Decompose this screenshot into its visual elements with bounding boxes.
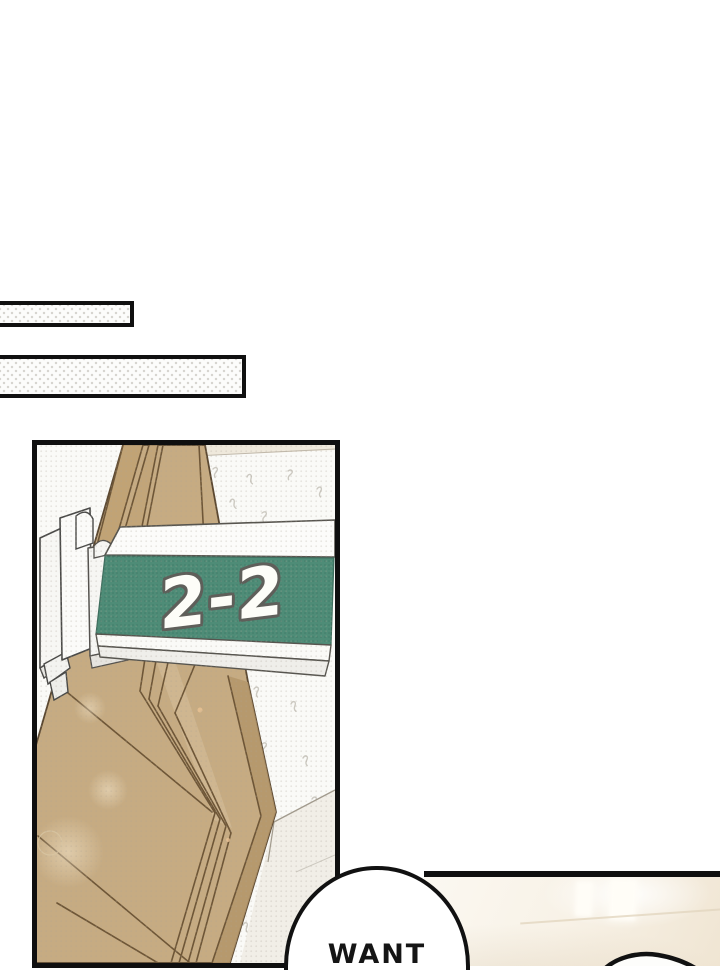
halftone-overlay <box>37 445 335 963</box>
narration-box <box>0 301 134 327</box>
narration-box <box>0 355 246 398</box>
comic-panel-door: 2-2 <box>32 440 340 968</box>
window-pane-highlight <box>575 882 593 917</box>
door-illustration <box>37 445 335 963</box>
speech-bubble-text: WANT <box>288 939 466 970</box>
character-head-outline <box>596 948 708 966</box>
